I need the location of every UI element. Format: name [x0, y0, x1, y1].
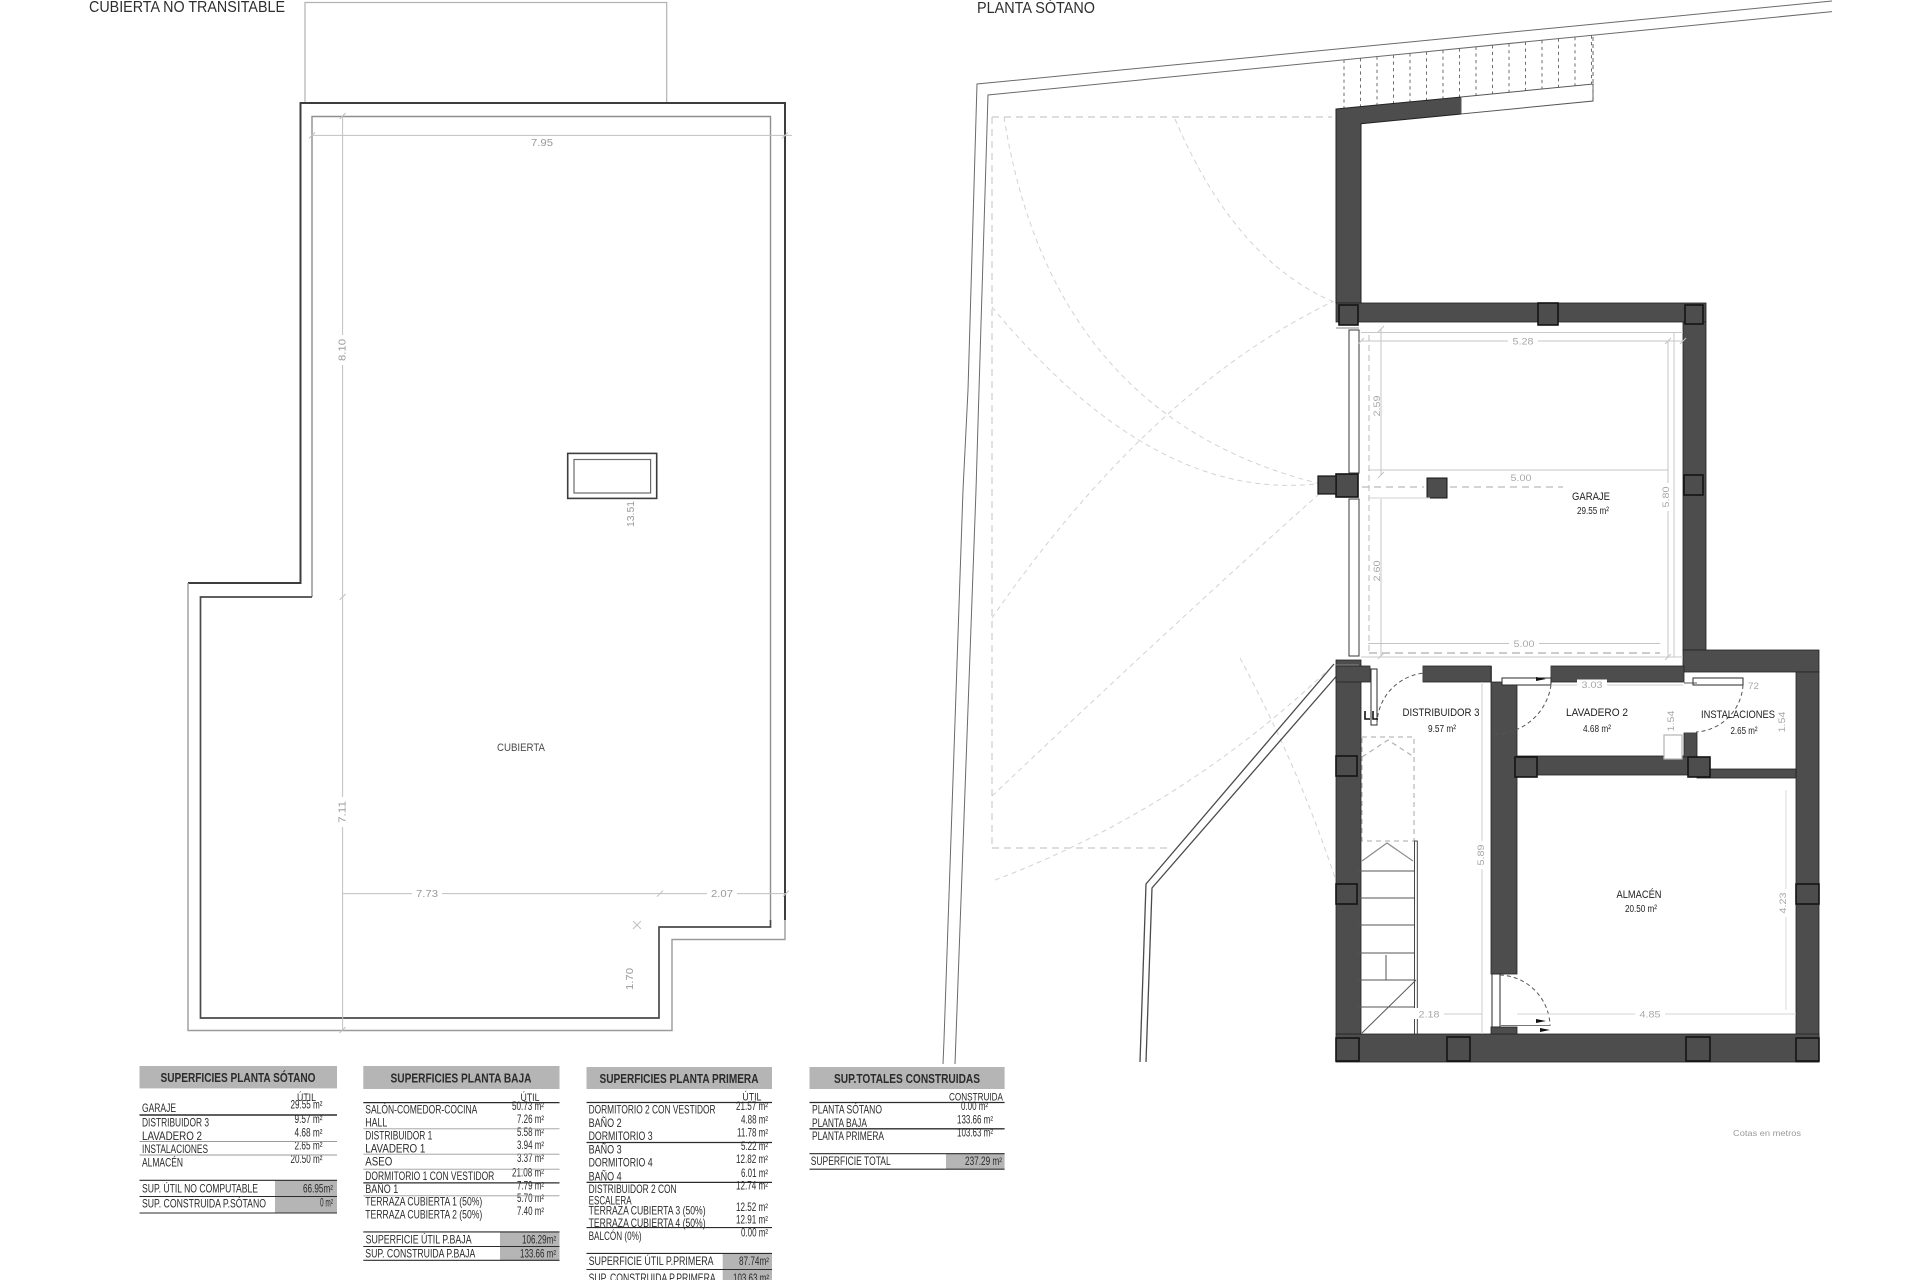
- svg-text:1.70: 1.70: [625, 968, 636, 990]
- svg-text:7.79 m²: 7.79 m²: [517, 1180, 544, 1192]
- svg-text:INSTALACIONES: INSTALACIONES: [142, 1142, 208, 1156]
- svg-text:GARAJE: GARAJE: [142, 1101, 176, 1115]
- svg-text:1.54: 1.54: [1666, 711, 1677, 732]
- svg-text:29.55 m²: 29.55 m²: [1577, 506, 1610, 517]
- svg-text:9.57 m²: 9.57 m²: [295, 1114, 323, 1126]
- svg-text:2.59: 2.59: [1372, 396, 1383, 417]
- svg-text:GARAJE: GARAJE: [1572, 491, 1610, 503]
- svg-text:DISTRIBUIDOR 1: DISTRIBUIDOR 1: [365, 1129, 432, 1143]
- svg-text:SUPERFICIES PLANTA BAJA: SUPERFICIES PLANTA BAJA: [391, 1072, 532, 1086]
- svg-text:ALMACÉN: ALMACÉN: [142, 1155, 183, 1170]
- svg-text:8.10: 8.10: [338, 339, 349, 361]
- svg-text:87.74m²: 87.74m²: [739, 1256, 769, 1268]
- svg-text:0.00 m²: 0.00 m²: [741, 1228, 768, 1240]
- svg-text:4.23: 4.23: [1778, 893, 1789, 914]
- svg-text:BAÑO 2: BAÑO 2: [589, 1116, 622, 1130]
- svg-text:CUBIERTA: CUBIERTA: [497, 742, 546, 754]
- svg-text:5.00: 5.00: [1514, 639, 1535, 650]
- svg-text:SUP.TOTALES CONSTRUIDAS: SUP.TOTALES CONSTRUIDAS: [834, 1072, 980, 1086]
- svg-text:4.68 m²: 4.68 m²: [1583, 724, 1612, 735]
- svg-text:PLANTA BAJA: PLANTA BAJA: [812, 1116, 867, 1130]
- svg-text:3.03: 3.03: [1582, 680, 1603, 691]
- svg-text:DISTRIBUIDOR 3: DISTRIBUIDOR 3: [1403, 707, 1480, 719]
- svg-text:2.60: 2.60: [1372, 561, 1383, 582]
- svg-text:7.95: 7.95: [531, 138, 553, 149]
- svg-text:1.54: 1.54: [1777, 712, 1788, 733]
- svg-text:CUBIERTA NO TRANSITABLE: CUBIERTA NO TRANSITABLE: [89, 0, 285, 16]
- svg-text:DORMITORIO 3: DORMITORIO 3: [589, 1129, 653, 1143]
- svg-text:SUPERFICIES PLANTA PRIMERA: SUPERFICIES PLANTA PRIMERA: [600, 1072, 759, 1086]
- svg-text:DISTRIBUIDOR 3: DISTRIBUIDOR 3: [142, 1116, 209, 1130]
- svg-text:11.78 m²: 11.78 m²: [737, 1128, 768, 1140]
- svg-text:5.70 m²: 5.70 m²: [517, 1193, 544, 1205]
- svg-text:LAVADERO 1: LAVADERO 1: [365, 1142, 425, 1156]
- svg-text:5.28: 5.28: [1513, 337, 1534, 348]
- svg-text:3.37 m²: 3.37 m²: [517, 1153, 544, 1165]
- svg-text:BAÑO 4: BAÑO 4: [589, 1169, 622, 1183]
- svg-text:HALL: HALL: [365, 1116, 387, 1130]
- svg-text:DORMITORIO 4: DORMITORIO 4: [589, 1156, 653, 1170]
- svg-text:Cotas en metros: Cotas en metros: [1733, 1128, 1801, 1138]
- svg-text:SUP. ÚTIL NO COMPUTABLE: SUP. ÚTIL NO COMPUTABLE: [142, 1181, 258, 1196]
- svg-text:BAÑO 3: BAÑO 3: [589, 1143, 622, 1157]
- svg-text:133.66 m²: 133.66 m²: [520, 1249, 556, 1261]
- svg-text:12.82 m²: 12.82 m²: [736, 1154, 768, 1166]
- svg-text:SUP. CONSTRUIDA P.BAJA: SUP. CONSTRUIDA P.BAJA: [365, 1247, 475, 1261]
- svg-text:29.55 m²: 29.55 m²: [291, 1100, 323, 1112]
- svg-text:SUPERFICIE ÚTIL P.BAJA: SUPERFICIE ÚTIL P.BAJA: [366, 1232, 472, 1247]
- svg-text:2.65 m²: 2.65 m²: [1731, 726, 1759, 737]
- svg-text:TERRAZA CUBIERTA 1 (50%): TERRAZA CUBIERTA 1 (50%): [365, 1195, 482, 1209]
- svg-text:7.11: 7.11: [338, 801, 349, 823]
- svg-text:237.29 m²: 237.29 m²: [965, 1156, 1002, 1168]
- svg-text:PLANTA SÓTANO: PLANTA SÓTANO: [977, 0, 1095, 17]
- svg-text:2.18: 2.18: [1419, 1010, 1440, 1021]
- svg-text:SUP. CONSTRUIDA P.SÓTANO: SUP. CONSTRUIDA P.SÓTANO: [142, 1196, 266, 1211]
- svg-text:2.65 m²: 2.65 m²: [295, 1141, 323, 1153]
- svg-text:66.95m²: 66.95m²: [303, 1184, 333, 1196]
- svg-text:7.40 m²: 7.40 m²: [517, 1206, 544, 1218]
- svg-text:LAVADERO 2: LAVADERO 2: [142, 1129, 202, 1143]
- svg-text:SALÓN-COMEDOR-COCINA: SALÓN-COMEDOR-COCINA: [365, 1102, 477, 1117]
- svg-text:20.50 m²: 20.50 m²: [1625, 904, 1658, 915]
- svg-text:7.26 m²: 7.26 m²: [517, 1114, 544, 1126]
- svg-text:SUPERFICIE ÚTIL P.PRIMERA: SUPERFICIE ÚTIL P.PRIMERA: [589, 1253, 714, 1268]
- svg-text:SUPERFICIES PLANTA SÓTANO: SUPERFICIES PLANTA SÓTANO: [161, 1070, 316, 1085]
- svg-text:DORMITORIO 2 CON VESTIDOR: DORMITORIO 2 CON VESTIDOR: [589, 1102, 716, 1116]
- svg-text:PLANTA SÓTANO: PLANTA SÓTANO: [812, 1101, 882, 1116]
- svg-text:TERRAZA CUBIERTA 2 (50%): TERRAZA CUBIERTA 2 (50%): [365, 1208, 482, 1222]
- svg-text:6.01 m²: 6.01 m²: [741, 1168, 768, 1180]
- svg-text:LAVADERO 2: LAVADERO 2: [1566, 707, 1628, 719]
- svg-text:BALCÓN (0%): BALCÓN (0%): [589, 1228, 642, 1243]
- svg-text:5.89: 5.89: [1476, 845, 1487, 866]
- svg-text:ALMACÉN: ALMACÉN: [1617, 888, 1662, 901]
- svg-text:5.80: 5.80: [1661, 487, 1672, 508]
- svg-text:2.07: 2.07: [711, 889, 733, 900]
- svg-text:4.85: 4.85: [1640, 1010, 1661, 1021]
- svg-text:13.51: 13.51: [626, 501, 637, 527]
- svg-text:ASEO: ASEO: [365, 1155, 392, 1169]
- svg-text:133.66 m²: 133.66 m²: [957, 1115, 993, 1127]
- svg-text:12.52 m²: 12.52 m²: [736, 1202, 768, 1214]
- svg-text:4.68 m²: 4.68 m²: [295, 1128, 323, 1140]
- svg-text:12.91 m²: 12.91 m²: [736, 1215, 768, 1227]
- svg-text:20.50 m²: 20.50 m²: [291, 1154, 323, 1166]
- svg-text:SUP. CONSTRUIDA P.PRIMERA: SUP. CONSTRUIDA P.PRIMERA: [589, 1271, 716, 1280]
- svg-text:103.63 m²: 103.63 m²: [733, 1273, 769, 1280]
- svg-text:PLANTA PRIMERA: PLANTA PRIMERA: [812, 1129, 884, 1143]
- svg-text:106.29m²: 106.29m²: [522, 1235, 556, 1247]
- svg-text:3.94 m²: 3.94 m²: [517, 1140, 544, 1152]
- svg-text:7.73: 7.73: [416, 889, 438, 900]
- svg-text:4.88 m²: 4.88 m²: [741, 1115, 768, 1127]
- svg-text:0 m²: 0 m²: [320, 1198, 333, 1210]
- svg-text:9.57 m²: 9.57 m²: [1428, 724, 1457, 735]
- svg-text:INSTALACIONES: INSTALACIONES: [1701, 709, 1775, 721]
- svg-text:5.00: 5.00: [1511, 473, 1532, 484]
- svg-text:72: 72: [1748, 681, 1759, 692]
- svg-text:SUPERFICIE TOTAL: SUPERFICIE TOTAL: [811, 1154, 891, 1168]
